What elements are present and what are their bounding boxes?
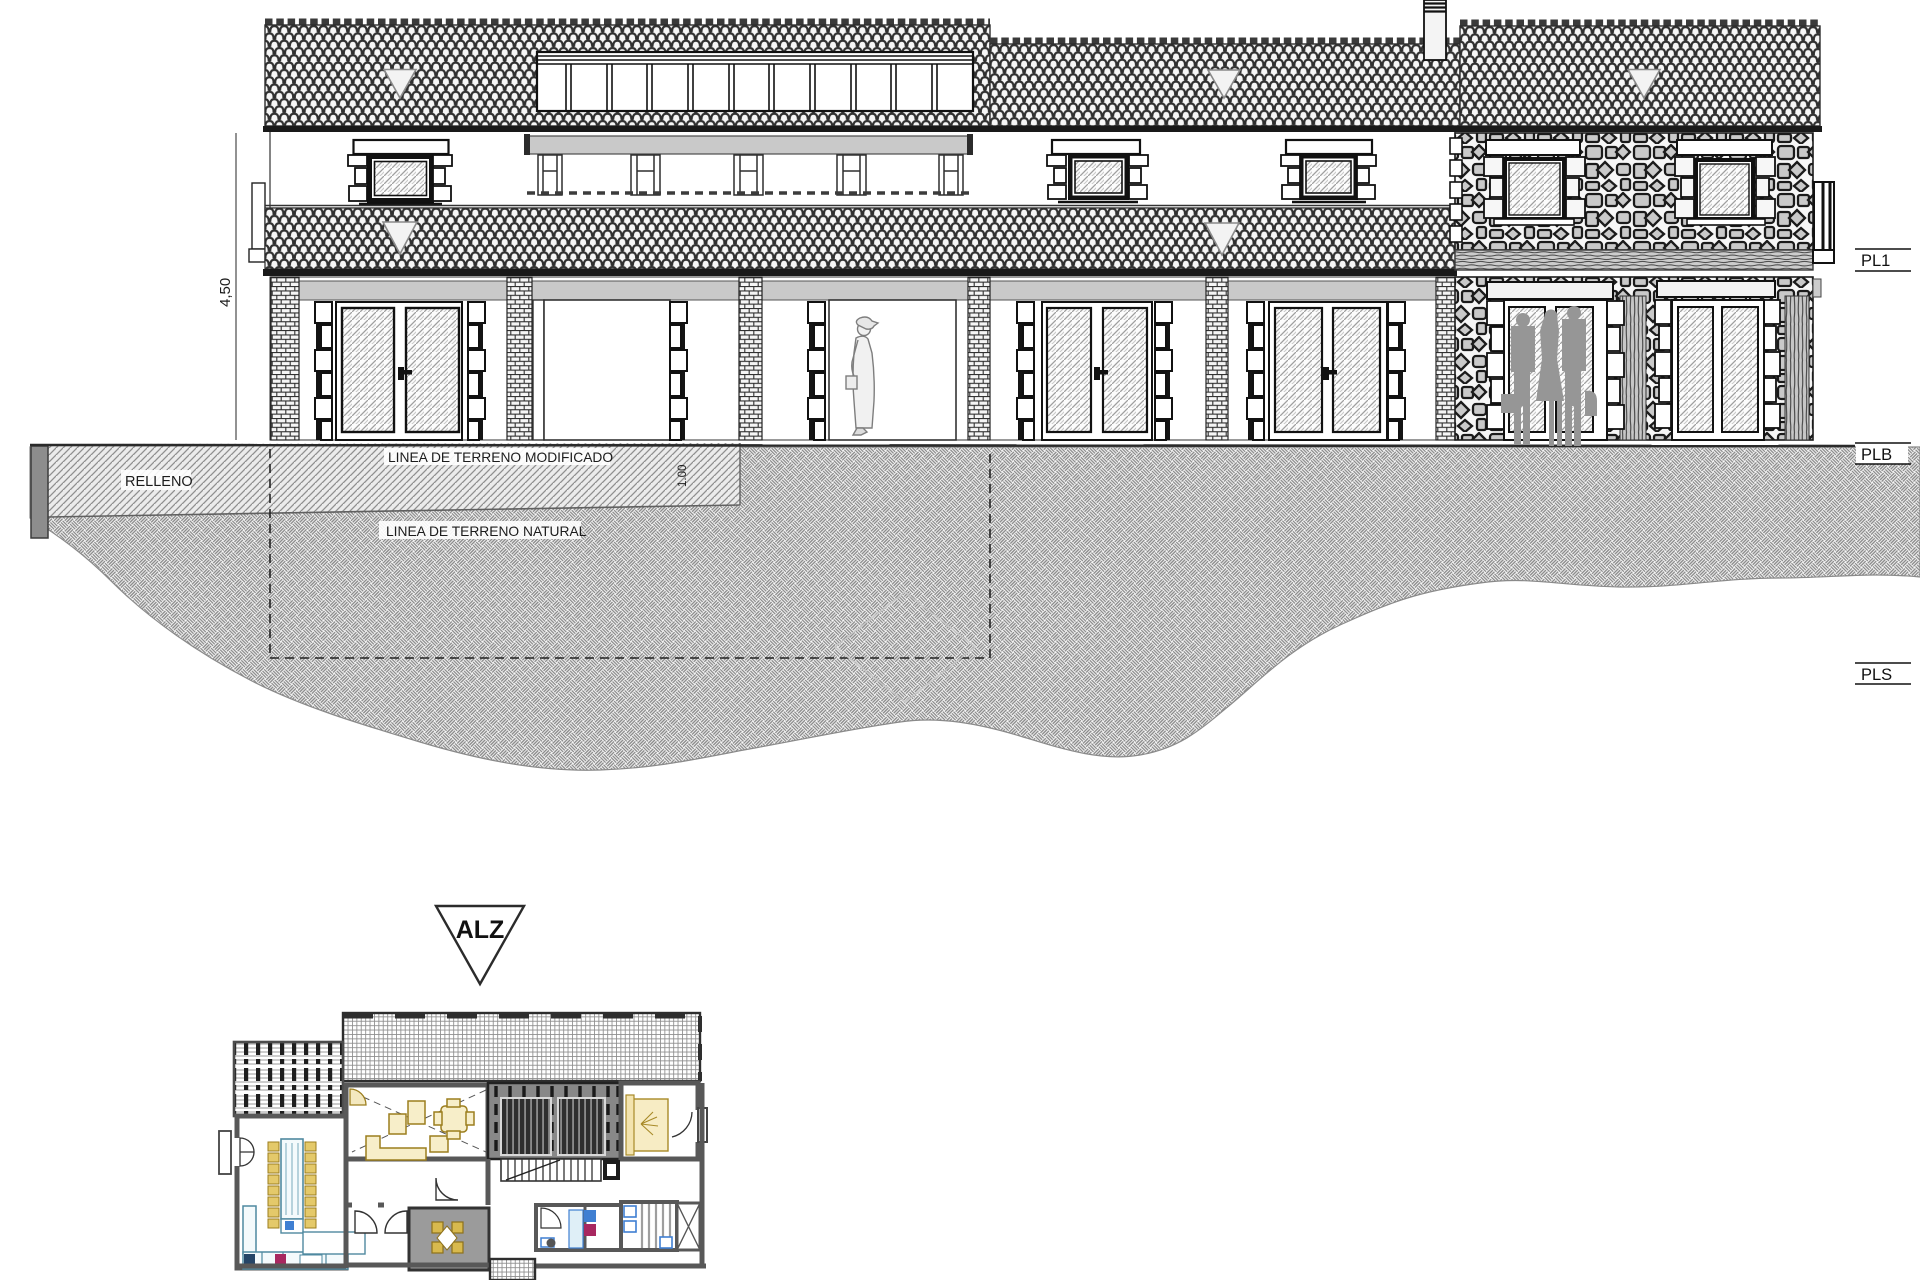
svg-text:PLB: PLB — [1861, 446, 1892, 464]
svg-text:PLS: PLS — [1861, 666, 1892, 684]
svg-text:1.00: 1.00 — [677, 465, 689, 487]
svg-text:RELLENO: RELLENO — [125, 474, 193, 490]
svg-text:LINEA DE TERRENO NATURAL: LINEA DE TERRENO NATURAL — [386, 524, 587, 539]
svg-text:PL1: PL1 — [1861, 252, 1890, 270]
svg-text:ALZ: ALZ — [456, 916, 505, 944]
svg-text:LINEA DE TERRENO MODIFICADO: LINEA DE TERRENO MODIFICADO — [388, 450, 613, 465]
svg-text:4,50: 4,50 — [217, 278, 234, 307]
